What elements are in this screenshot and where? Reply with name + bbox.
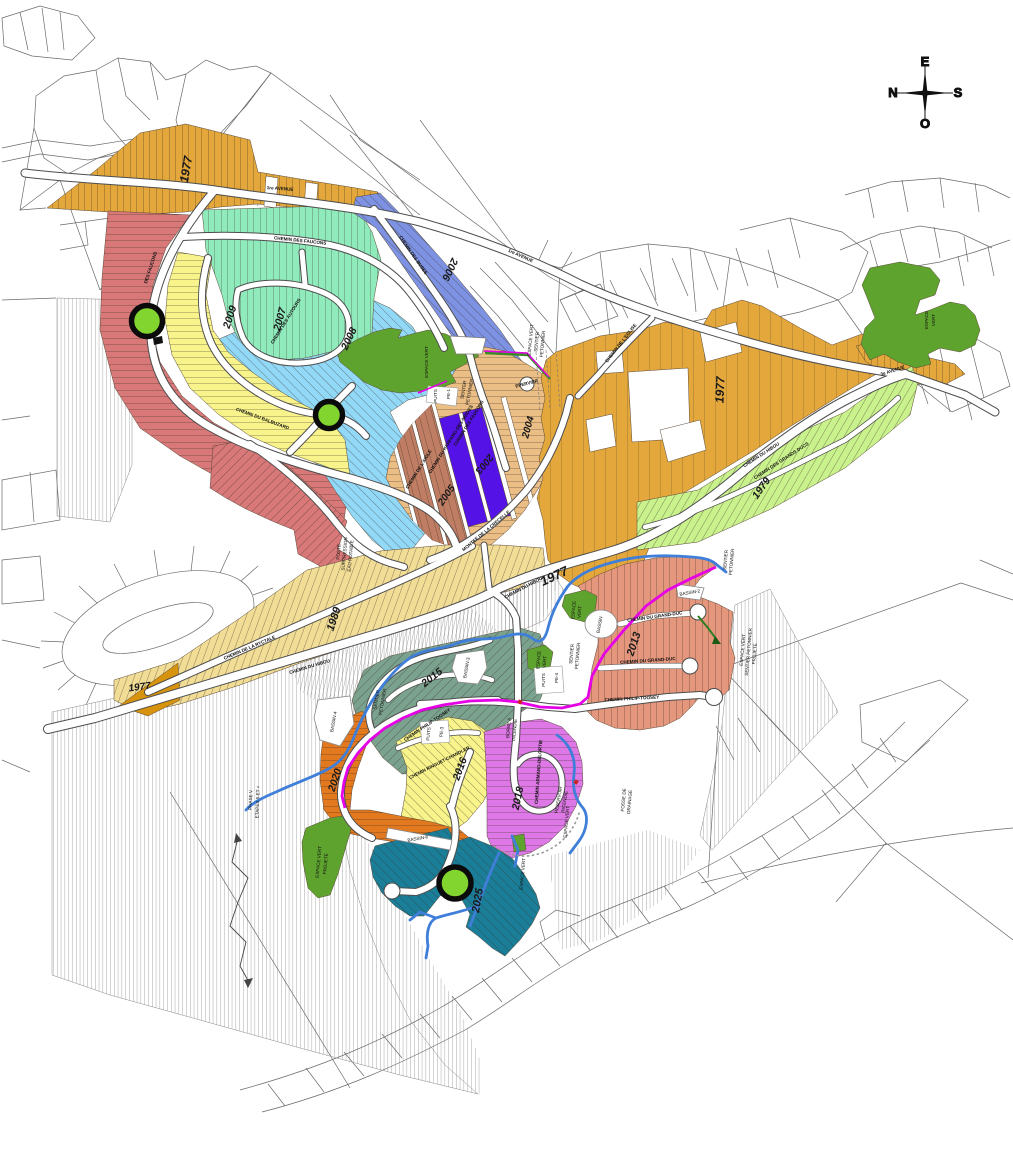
svg-text:O: O: [920, 116, 930, 131]
svg-text:PUITS: PUITS: [433, 389, 438, 403]
svg-text:PE-1: PE-1: [446, 388, 451, 399]
svg-text:PE-3: PE-3: [439, 726, 445, 737]
svg-text:E: E: [921, 54, 930, 69]
svg-text:S: S: [954, 85, 963, 100]
svg-text:VERT: VERT: [931, 314, 936, 326]
svg-text:PHASE V: PHASE V: [248, 789, 254, 810]
svg-text:ESPACE VERT: ESPACE VERT: [424, 346, 429, 378]
svg-text:PE-4: PE-4: [554, 672, 559, 683]
svg-text:N: N: [888, 85, 897, 100]
svg-text:1977: 1977: [713, 375, 728, 403]
svg-text:ESPACE: ESPACE: [924, 311, 929, 329]
svg-text:PUITS: PUITS: [541, 673, 546, 687]
